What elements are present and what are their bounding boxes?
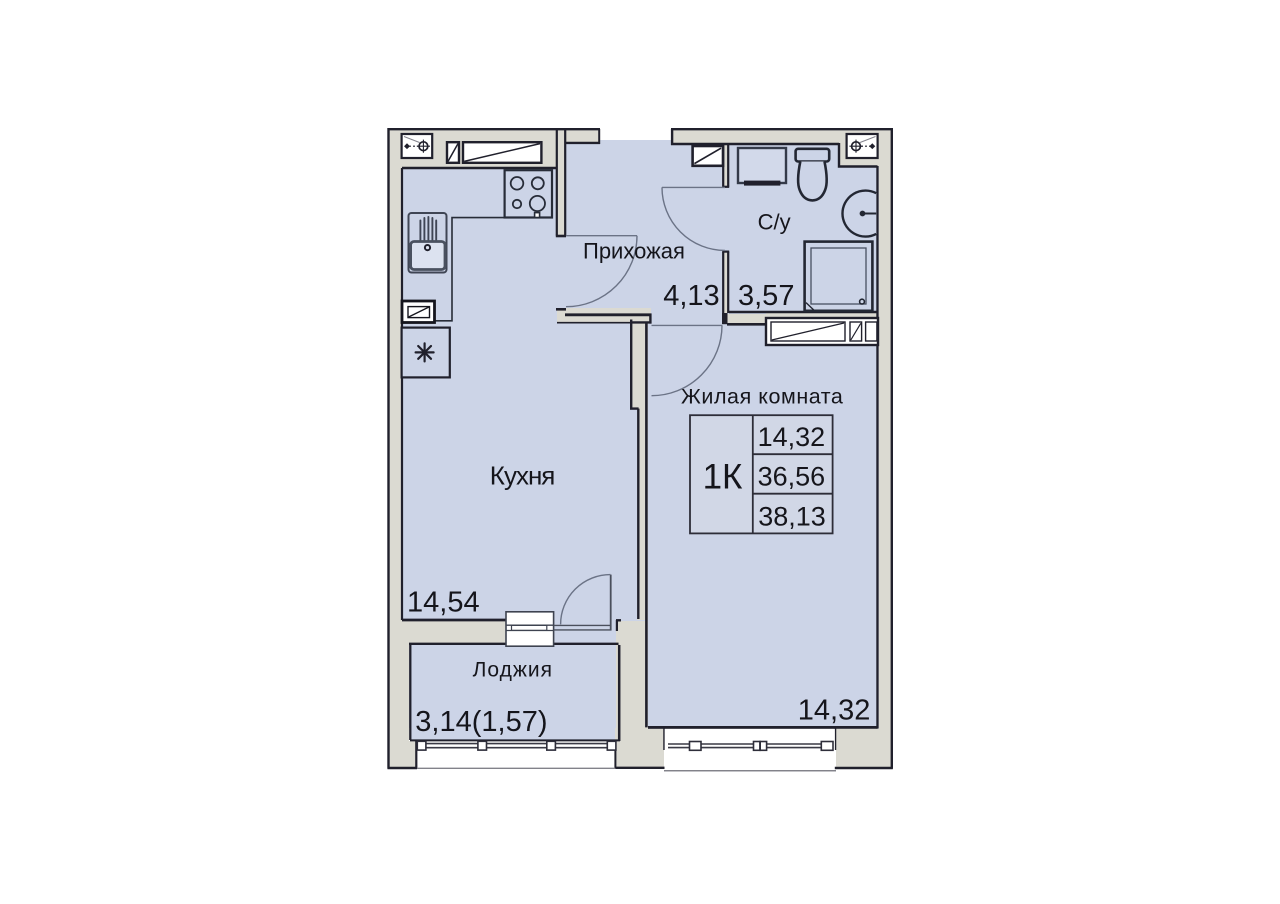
svg-text:Прихожая: Прихожая [583,238,685,263]
svg-text:38,13: 38,13 [758,502,826,532]
svg-text:36,56: 36,56 [758,462,826,492]
svg-text:С/у: С/у [758,210,791,235]
svg-text:Жилая комната: Жилая комната [681,385,843,409]
svg-text:14,32: 14,32 [758,422,826,452]
svg-text:Лоджия: Лоджия [473,659,553,682]
svg-text:14,54: 14,54 [407,586,480,618]
svg-text:3,14(1,57): 3,14(1,57) [415,706,547,738]
svg-text:4,13: 4,13 [663,280,719,312]
svg-text:1К: 1К [703,458,743,497]
svg-text:Кухня: Кухня [490,460,555,490]
svg-text:3,57: 3,57 [738,280,794,312]
svg-text:14,32: 14,32 [798,695,871,727]
